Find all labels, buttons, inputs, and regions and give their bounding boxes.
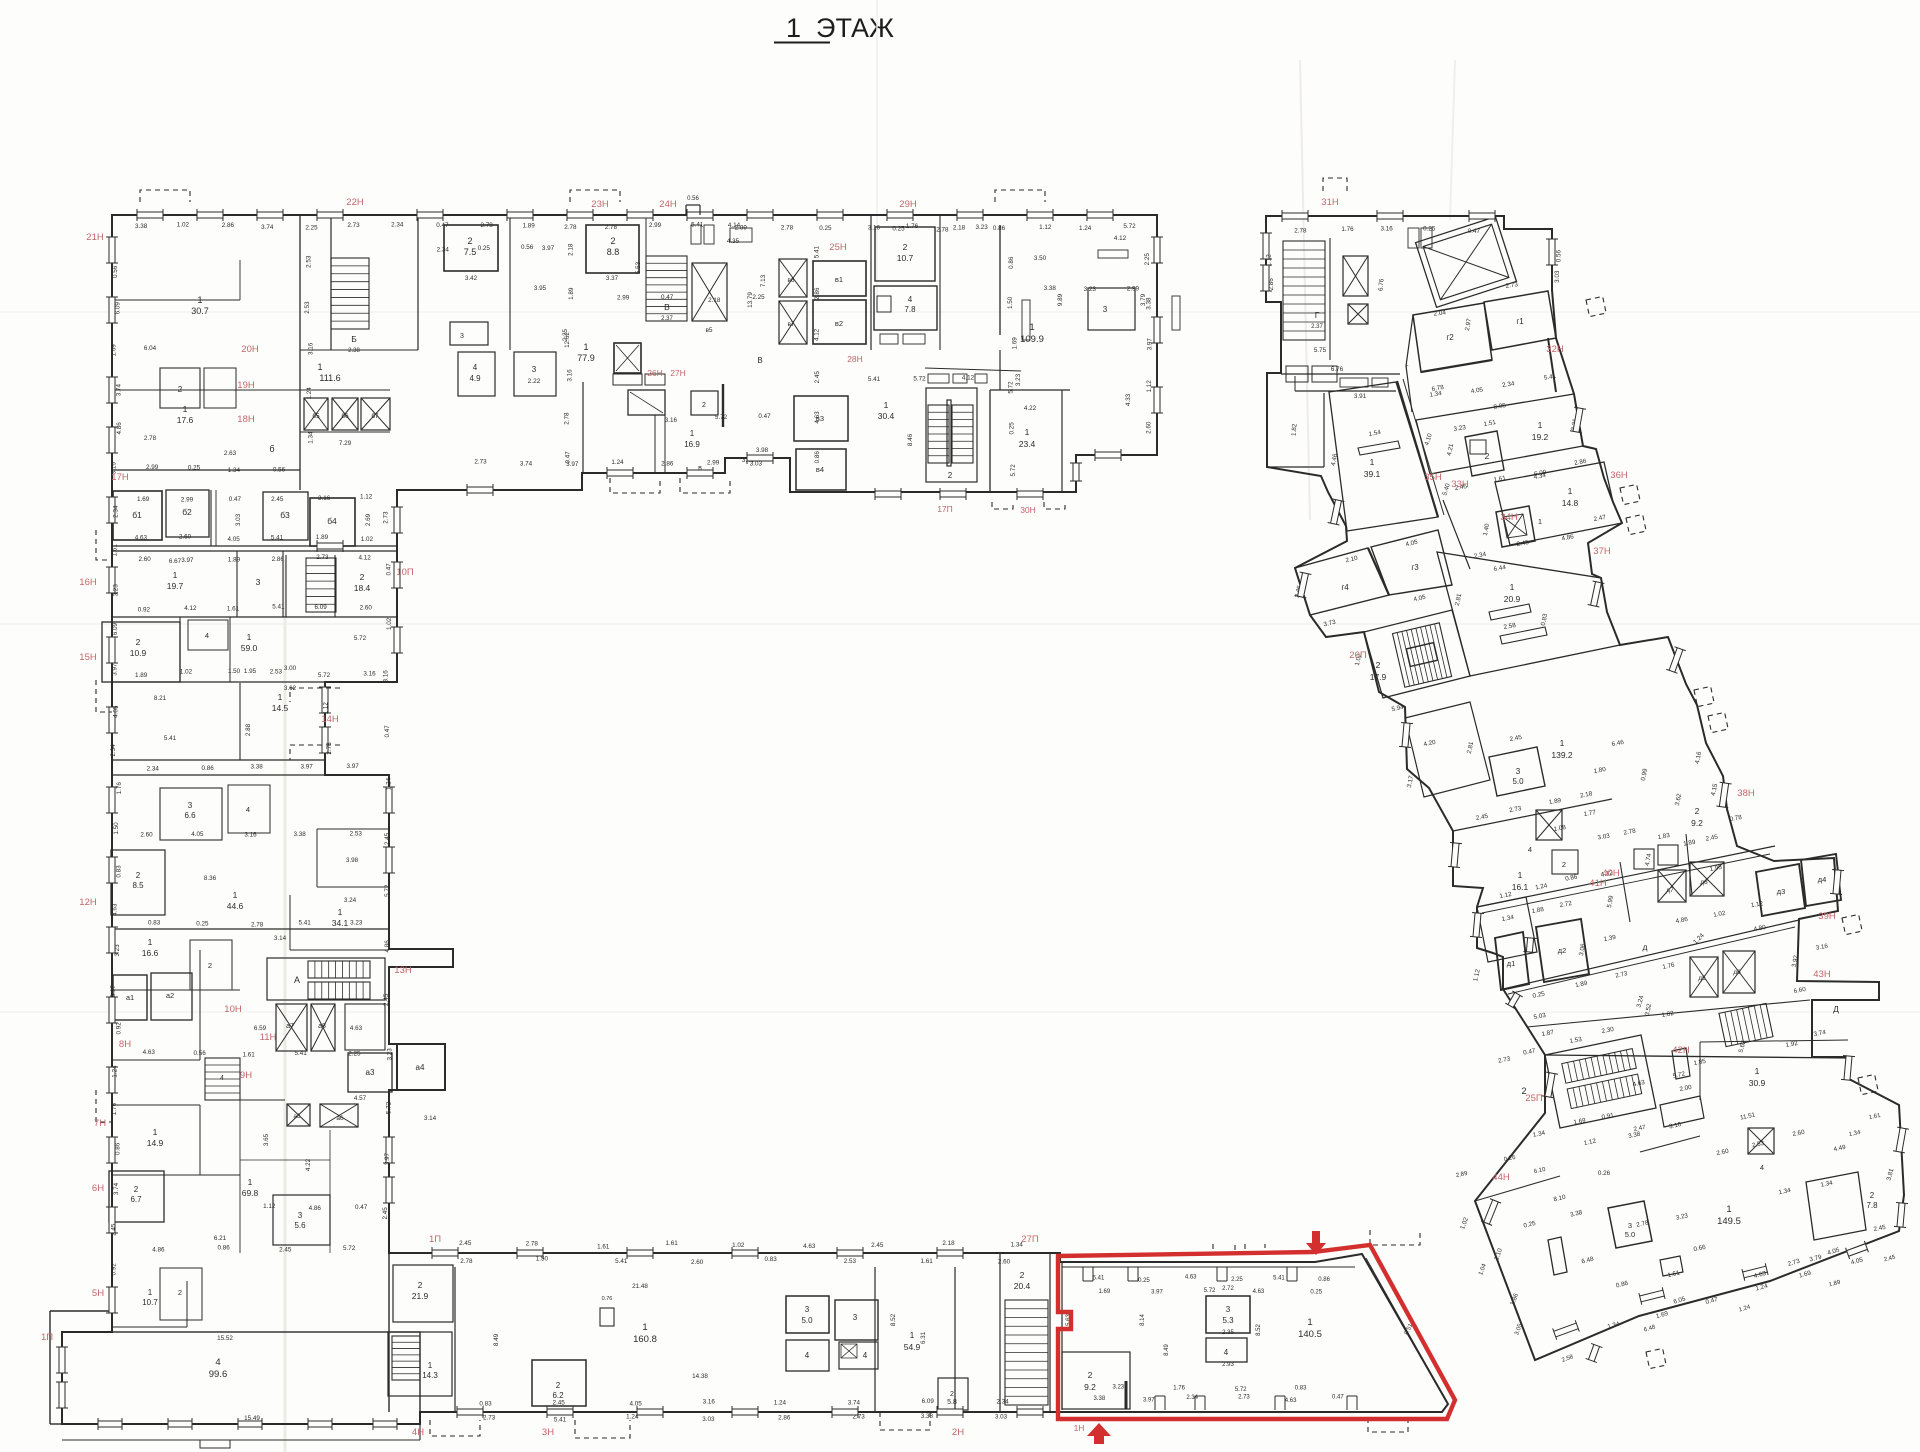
- svg-text:140.5: 140.5: [1298, 1329, 1322, 1340]
- svg-text:0.56: 0.56: [1556, 250, 1563, 263]
- svg-text:1.89: 1.89: [523, 222, 536, 229]
- svg-text:139.2: 139.2: [1551, 750, 1573, 760]
- svg-text:5.41: 5.41: [164, 735, 177, 742]
- svg-text:23Н: 23Н: [591, 199, 609, 210]
- svg-text:4.63: 4.63: [1253, 1289, 1265, 1295]
- svg-text:2.86: 2.86: [1268, 278, 1275, 291]
- svg-text:6.09: 6.09: [922, 1398, 935, 1405]
- svg-text:в1: в1: [835, 275, 843, 284]
- svg-text:4.05: 4.05: [228, 536, 241, 543]
- svg-text:2.45: 2.45: [271, 496, 284, 503]
- svg-text:4.63: 4.63: [1285, 1398, 1297, 1404]
- svg-text:2.45: 2.45: [279, 1247, 292, 1254]
- svg-text:1.69: 1.69: [137, 496, 150, 503]
- svg-text:2: 2: [1695, 806, 1700, 816]
- svg-text:16Н: 16Н: [79, 577, 97, 588]
- svg-text:1.61: 1.61: [920, 1258, 933, 1265]
- svg-text:6.6: 6.6: [184, 811, 196, 820]
- svg-text:3: 3: [1226, 1305, 1231, 1314]
- svg-text:3.16: 3.16: [567, 369, 574, 382]
- svg-text:1: 1: [148, 937, 153, 947]
- svg-text:1: 1: [642, 1322, 647, 1333]
- svg-text:6.09: 6.09: [314, 604, 327, 611]
- svg-text:0.83: 0.83: [115, 865, 122, 878]
- svg-text:109.9: 109.9: [1020, 334, 1044, 345]
- svg-text:4.86: 4.86: [309, 1205, 322, 1212]
- svg-text:2.53: 2.53: [350, 830, 363, 837]
- svg-text:2.34: 2.34: [147, 766, 160, 773]
- svg-text:0.86: 0.86: [1318, 1277, 1330, 1283]
- svg-text:2.72: 2.72: [1222, 1286, 1234, 1292]
- svg-text:Г: Г: [1315, 310, 1320, 320]
- svg-text:9.2: 9.2: [1691, 818, 1703, 828]
- svg-text:34.1: 34.1: [332, 918, 349, 928]
- svg-text:0.47: 0.47: [229, 496, 242, 503]
- svg-text:2: 2: [610, 236, 615, 246]
- svg-text:3.16: 3.16: [363, 670, 376, 677]
- svg-text:1: 1: [278, 692, 283, 702]
- svg-text:22Н: 22Н: [346, 197, 364, 208]
- svg-text:2.60: 2.60: [691, 1259, 704, 1266]
- svg-text:д4: д4: [1818, 875, 1827, 884]
- svg-text:1: 1: [1538, 517, 1542, 526]
- svg-text:1: 1: [1755, 1066, 1760, 1076]
- svg-text:а5: а5: [293, 1113, 301, 1120]
- svg-text:0.86: 0.86: [993, 225, 1006, 232]
- svg-text:3: 3: [460, 333, 464, 340]
- svg-text:2.53: 2.53: [270, 668, 283, 675]
- svg-text:4.63: 4.63: [350, 1025, 363, 1032]
- svg-text:2.60: 2.60: [140, 832, 153, 839]
- svg-text:2.78: 2.78: [781, 224, 794, 231]
- svg-text:4: 4: [908, 295, 913, 304]
- svg-text:0.47: 0.47: [758, 413, 771, 420]
- svg-text:1: 1: [247, 632, 252, 642]
- svg-text:3.97: 3.97: [111, 663, 118, 676]
- svg-text:1: 1: [1025, 427, 1030, 437]
- svg-text:30.9: 30.9: [1749, 1078, 1766, 1088]
- svg-text:7.8: 7.8: [1866, 1201, 1878, 1210]
- svg-text:0.25: 0.25: [1009, 422, 1016, 435]
- svg-text:5.72: 5.72: [1008, 381, 1015, 394]
- svg-text:1.24: 1.24: [1079, 225, 1092, 232]
- svg-text:17.6: 17.6: [177, 415, 194, 425]
- svg-text:5.72: 5.72: [1010, 464, 1017, 477]
- svg-text:2.78: 2.78: [564, 412, 571, 425]
- svg-text:2.53: 2.53: [305, 255, 312, 268]
- svg-text:3.23: 3.23: [113, 584, 120, 597]
- svg-text:38Н: 38Н: [1737, 788, 1755, 799]
- svg-text:5.72: 5.72: [384, 884, 391, 897]
- svg-text:2.34: 2.34: [112, 505, 119, 518]
- svg-text:5.41: 5.41: [554, 1417, 567, 1424]
- svg-text:6.21: 6.21: [214, 1235, 227, 1242]
- svg-text:0.56: 0.56: [112, 265, 119, 278]
- svg-text:6.76: 6.76: [1377, 278, 1385, 291]
- svg-text:2.18: 2.18: [568, 243, 575, 256]
- svg-text:Б: Б: [351, 334, 357, 344]
- svg-text:д6: д6: [1733, 969, 1741, 976]
- svg-text:1.24: 1.24: [306, 387, 313, 400]
- svg-text:2.60: 2.60: [360, 604, 373, 611]
- svg-text:а1: а1: [126, 993, 134, 1002]
- svg-text:8.49: 8.49: [1164, 1344, 1170, 1356]
- svg-text:2.78: 2.78: [460, 1258, 473, 1265]
- svg-text:1П: 1П: [429, 1234, 441, 1245]
- svg-text:1: 1: [884, 400, 889, 410]
- svg-text:1 ЭТАЖ: 1 ЭТАЖ: [786, 13, 894, 43]
- svg-text:2.73: 2.73: [474, 458, 487, 465]
- svg-text:6.09: 6.09: [112, 622, 119, 635]
- svg-text:4.12: 4.12: [1114, 235, 1127, 242]
- svg-text:14.3: 14.3: [422, 1371, 438, 1380]
- svg-text:4Н: 4Н: [412, 1427, 424, 1438]
- svg-text:14.5: 14.5: [272, 703, 289, 713]
- svg-text:1.61: 1.61: [227, 606, 240, 613]
- svg-text:В: В: [664, 302, 670, 312]
- svg-text:4.35: 4.35: [727, 238, 740, 245]
- svg-text:2Н: 2Н: [952, 1427, 964, 1438]
- svg-text:0.25: 0.25: [478, 245, 491, 252]
- svg-text:7.13: 7.13: [760, 274, 767, 287]
- svg-text:д3: д3: [1777, 887, 1786, 896]
- svg-text:0.47: 0.47: [1332, 1395, 1344, 1401]
- svg-text:5.41: 5.41: [615, 1258, 628, 1265]
- svg-text:6.76: 6.76: [1331, 366, 1344, 373]
- svg-text:6.04: 6.04: [144, 345, 157, 352]
- svg-text:6.67: 6.67: [169, 558, 182, 565]
- svg-text:25Н: 25Н: [829, 242, 847, 253]
- svg-text:0.86: 0.86: [1008, 256, 1015, 269]
- svg-text:1: 1: [428, 1361, 433, 1370]
- svg-text:8.8: 8.8: [607, 247, 620, 257]
- svg-text:б2: б2: [182, 507, 192, 517]
- svg-text:б: б: [269, 444, 274, 454]
- svg-text:а6: а6: [336, 1115, 344, 1122]
- svg-text:2.34: 2.34: [437, 247, 450, 254]
- svg-text:2.34: 2.34: [1186, 1395, 1198, 1401]
- svg-text:37Н: 37Н: [1593, 546, 1611, 557]
- svg-text:0.76: 0.76: [602, 1296, 613, 1302]
- svg-text:0.47: 0.47: [661, 294, 674, 301]
- svg-text:3: 3: [298, 1211, 303, 1220]
- svg-text:2.53: 2.53: [844, 1258, 857, 1265]
- svg-text:1.82: 1.82: [1290, 423, 1298, 436]
- svg-text:3.23: 3.23: [1112, 1385, 1124, 1391]
- svg-text:3.03: 3.03: [1554, 270, 1561, 283]
- svg-text:2.78: 2.78: [526, 1241, 539, 1248]
- svg-text:20.9: 20.9: [1504, 594, 1521, 604]
- svg-text:г3: г3: [1411, 563, 1419, 572]
- svg-text:0.47: 0.47: [384, 725, 391, 738]
- svg-text:д7: д7: [1666, 887, 1674, 894]
- svg-text:3.50: 3.50: [1034, 255, 1047, 262]
- svg-text:4: 4: [805, 1351, 810, 1360]
- svg-text:99.6: 99.6: [209, 1369, 228, 1380]
- svg-text:3.16: 3.16: [244, 831, 257, 838]
- svg-text:2.73: 2.73: [1238, 1394, 1250, 1400]
- svg-text:1.24: 1.24: [385, 777, 392, 790]
- svg-text:7.5: 7.5: [464, 247, 477, 257]
- svg-text:2.37: 2.37: [1311, 324, 1323, 330]
- svg-text:5.72: 5.72: [386, 1101, 393, 1114]
- svg-text:44Н: 44Н: [1492, 1172, 1510, 1183]
- svg-text:43Н: 43Н: [1813, 969, 1831, 980]
- svg-text:3.74: 3.74: [113, 1182, 120, 1195]
- svg-text:2.25: 2.25: [752, 294, 765, 301]
- svg-text:2.34: 2.34: [996, 1398, 1009, 1405]
- svg-text:14.38: 14.38: [692, 1373, 708, 1380]
- svg-text:5.41: 5.41: [1093, 1276, 1105, 1282]
- svg-text:2.38: 2.38: [348, 348, 360, 354]
- svg-text:1.34: 1.34: [228, 467, 241, 474]
- svg-text:20П: 20П: [1349, 650, 1367, 661]
- svg-text:3Н: 3Н: [542, 1427, 554, 1438]
- svg-text:5.41: 5.41: [295, 1050, 308, 1057]
- svg-text:1: 1: [1510, 582, 1515, 592]
- svg-text:2.78: 2.78: [936, 226, 949, 233]
- svg-text:2.73: 2.73: [383, 511, 390, 524]
- svg-text:г1: г1: [1516, 317, 1524, 326]
- svg-text:23.4: 23.4: [1019, 439, 1036, 449]
- svg-text:1.12: 1.12: [1146, 380, 1153, 393]
- svg-text:0.83: 0.83: [1295, 1386, 1307, 1392]
- svg-text:3.38: 3.38: [135, 223, 148, 230]
- svg-text:2: 2: [1870, 1191, 1875, 1200]
- svg-text:2: 2: [903, 242, 908, 252]
- svg-text:А: А: [294, 975, 300, 985]
- svg-text:10Н: 10Н: [224, 1004, 242, 1015]
- svg-text:3: 3: [805, 1305, 810, 1314]
- svg-text:3.38: 3.38: [250, 764, 263, 771]
- svg-text:2.78: 2.78: [564, 224, 577, 231]
- svg-text:0.47: 0.47: [1468, 228, 1481, 235]
- svg-text:5.72: 5.72: [715, 414, 728, 421]
- svg-text:д2: д2: [1558, 946, 1567, 955]
- svg-text:2.18: 2.18: [708, 297, 721, 304]
- svg-text:3.38: 3.38: [293, 831, 306, 838]
- svg-text:4.86: 4.86: [384, 940, 391, 953]
- svg-text:3.23: 3.23: [1015, 373, 1022, 386]
- svg-text:17Н: 17Н: [111, 472, 129, 483]
- svg-text:1.69: 1.69: [1011, 337, 1018, 350]
- svg-text:1.61: 1.61: [111, 544, 118, 557]
- svg-text:39Н: 39Н: [1818, 911, 1836, 922]
- svg-text:1: 1: [153, 1127, 158, 1137]
- svg-text:1.89: 1.89: [135, 672, 148, 679]
- svg-text:5.0: 5.0: [1512, 777, 1524, 786]
- svg-text:2: 2: [556, 1381, 561, 1390]
- svg-text:1.12: 1.12: [322, 702, 329, 715]
- svg-text:г2: г2: [1446, 333, 1454, 342]
- svg-text:5.6: 5.6: [294, 1221, 306, 1230]
- svg-text:3.00: 3.00: [284, 665, 297, 672]
- svg-text:2.78: 2.78: [1294, 227, 1307, 234]
- svg-text:15.52: 15.52: [217, 1335, 233, 1342]
- svg-text:3: 3: [188, 801, 193, 810]
- svg-text:2.63: 2.63: [224, 450, 237, 457]
- svg-text:2: 2: [136, 871, 141, 880]
- svg-text:1: 1: [1726, 1204, 1731, 1215]
- svg-text:19Н: 19Н: [237, 380, 255, 391]
- svg-text:3.91: 3.91: [1354, 393, 1367, 400]
- svg-text:2.78: 2.78: [251, 921, 264, 928]
- svg-text:1.02: 1.02: [361, 536, 374, 543]
- svg-text:2.99: 2.99: [649, 222, 662, 229]
- svg-text:0.47: 0.47: [355, 1204, 368, 1211]
- svg-text:3: 3: [853, 1313, 858, 1322]
- svg-text:5.0: 5.0: [1625, 1230, 1635, 1239]
- svg-text:2.99: 2.99: [146, 464, 159, 471]
- svg-text:1.02: 1.02: [177, 221, 190, 228]
- svg-text:3.38: 3.38: [1044, 285, 1057, 292]
- svg-text:16.6: 16.6: [142, 948, 159, 958]
- svg-text:2.45: 2.45: [382, 1207, 389, 1220]
- svg-text:2.45: 2.45: [384, 832, 391, 845]
- svg-text:4.63: 4.63: [143, 1049, 156, 1056]
- svg-text:2.45: 2.45: [814, 371, 821, 384]
- svg-text:3.42: 3.42: [465, 275, 478, 282]
- svg-text:1.24: 1.24: [774, 1400, 787, 1407]
- svg-text:21.9: 21.9: [412, 1291, 429, 1301]
- svg-text:1.76: 1.76: [906, 223, 919, 230]
- svg-text:5.53: 5.53: [635, 261, 642, 274]
- svg-text:1.61: 1.61: [242, 1051, 255, 1058]
- svg-text:10.7: 10.7: [897, 253, 914, 263]
- svg-text:5.72: 5.72: [1123, 223, 1136, 230]
- svg-text:8.21: 8.21: [154, 695, 167, 702]
- svg-text:3.16: 3.16: [868, 225, 881, 232]
- svg-text:3.97: 3.97: [384, 1152, 391, 1165]
- svg-text:35Н: 35Н: [1424, 472, 1442, 483]
- svg-text:2.18: 2.18: [942, 1240, 955, 1247]
- svg-text:1.76: 1.76: [1341, 226, 1354, 233]
- svg-text:2: 2: [178, 385, 183, 394]
- svg-text:4.05: 4.05: [113, 705, 120, 718]
- svg-text:1: 1: [583, 342, 588, 352]
- svg-text:11Н: 11Н: [260, 1032, 277, 1043]
- svg-text:1.50: 1.50: [113, 822, 120, 835]
- svg-text:8Н: 8Н: [119, 1039, 131, 1050]
- svg-text:1.76: 1.76: [111, 1103, 118, 1116]
- svg-text:2.60: 2.60: [998, 1258, 1011, 1265]
- svg-text:3.97: 3.97: [181, 557, 194, 564]
- svg-text:1.76: 1.76: [1173, 1386, 1185, 1392]
- svg-text:19.2: 19.2: [1532, 432, 1549, 442]
- svg-text:8.49: 8.49: [493, 1333, 500, 1346]
- svg-text:3.14: 3.14: [424, 1115, 437, 1122]
- svg-text:160.8: 160.8: [633, 1334, 657, 1345]
- svg-text:3.03: 3.03: [750, 460, 763, 467]
- svg-text:3.16: 3.16: [307, 342, 314, 355]
- svg-text:1.24: 1.24: [112, 1065, 119, 1078]
- svg-text:1.02: 1.02: [386, 617, 393, 630]
- svg-text:16.9: 16.9: [684, 440, 700, 449]
- svg-text:1.89: 1.89: [228, 556, 241, 563]
- svg-text:0.92: 0.92: [138, 606, 151, 613]
- svg-text:34Н: 34Н: [1500, 512, 1518, 523]
- svg-text:21Н: 21Н: [86, 232, 104, 243]
- svg-text:1.50: 1.50: [1007, 296, 1014, 309]
- svg-text:1.69: 1.69: [1098, 1289, 1110, 1295]
- svg-text:2: 2: [948, 471, 953, 480]
- svg-text:2.88: 2.88: [245, 723, 252, 736]
- svg-text:2.53: 2.53: [304, 301, 311, 314]
- svg-text:5.72: 5.72: [1235, 1387, 1247, 1393]
- svg-text:2.60: 2.60: [139, 556, 152, 563]
- svg-text:1.76: 1.76: [116, 782, 123, 795]
- svg-text:2.99: 2.99: [1127, 285, 1140, 292]
- svg-text:5.41: 5.41: [272, 604, 285, 611]
- svg-text:1.34: 1.34: [307, 431, 314, 444]
- svg-text:28Н: 28Н: [847, 354, 863, 364]
- svg-text:5.41: 5.41: [813, 245, 820, 258]
- svg-text:а8: а8: [318, 1023, 326, 1030]
- svg-text:59.0: 59.0: [241, 643, 258, 653]
- svg-text:1.89: 1.89: [316, 534, 329, 541]
- svg-text:5.75: 5.75: [1314, 347, 1327, 354]
- svg-text:10.7: 10.7: [142, 1298, 158, 1307]
- svg-text:2.73: 2.73: [347, 222, 360, 229]
- svg-text:1: 1: [338, 907, 343, 917]
- svg-text:0.83: 0.83: [479, 1401, 492, 1408]
- svg-text:4.05: 4.05: [629, 1401, 642, 1408]
- svg-text:2.34: 2.34: [391, 222, 404, 229]
- svg-text:2.78: 2.78: [605, 224, 618, 231]
- svg-text:1: 1: [148, 1288, 153, 1297]
- svg-text:1: 1: [690, 429, 695, 438]
- svg-text:5.72: 5.72: [913, 376, 926, 383]
- svg-text:2.99: 2.99: [617, 294, 630, 301]
- svg-text:33Н: 33Н: [1451, 479, 1469, 490]
- svg-text:4.12: 4.12: [962, 375, 975, 382]
- svg-text:30Н: 30Н: [1020, 505, 1036, 515]
- svg-text:б1: б1: [132, 510, 142, 520]
- svg-text:29Н: 29Н: [899, 199, 917, 210]
- svg-text:в2: в2: [835, 319, 843, 328]
- svg-text:3: 3: [532, 365, 537, 374]
- svg-text:0.56: 0.56: [194, 1050, 207, 1057]
- svg-text:1.12: 1.12: [360, 493, 373, 500]
- svg-text:4.63: 4.63: [803, 1243, 816, 1250]
- svg-text:2.86: 2.86: [778, 1415, 791, 1422]
- svg-text:0.92: 0.92: [110, 1263, 117, 1276]
- svg-text:2.25: 2.25: [348, 1051, 361, 1058]
- svg-text:2: 2: [1020, 1270, 1025, 1280]
- svg-text:19.7: 19.7: [167, 581, 184, 591]
- svg-text:8.46: 8.46: [907, 433, 914, 446]
- svg-text:2.34: 2.34: [110, 744, 117, 757]
- svg-text:1.12: 1.12: [263, 1203, 276, 1210]
- svg-text:4: 4: [205, 631, 209, 640]
- svg-text:8.14: 8.14: [1140, 1314, 1146, 1326]
- svg-text:2.60: 2.60: [179, 534, 192, 541]
- svg-text:3.03: 3.03: [702, 1416, 715, 1423]
- svg-text:4: 4: [220, 1075, 224, 1082]
- svg-text:30.4: 30.4: [878, 411, 895, 421]
- svg-text:3.97: 3.97: [1151, 1289, 1163, 1295]
- svg-text:2: 2: [1562, 860, 1566, 869]
- svg-text:3.16: 3.16: [383, 670, 390, 683]
- svg-text:0.25: 0.25: [892, 226, 905, 233]
- svg-text:21.48: 21.48: [632, 1283, 648, 1290]
- svg-text:1: 1: [1518, 870, 1523, 880]
- svg-text:3.16: 3.16: [665, 417, 678, 424]
- svg-text:2.73: 2.73: [316, 554, 329, 561]
- svg-text:3.16: 3.16: [703, 1399, 716, 1406]
- svg-text:9Н: 9Н: [240, 1070, 252, 1081]
- svg-text:7Н: 7Н: [94, 1118, 106, 1129]
